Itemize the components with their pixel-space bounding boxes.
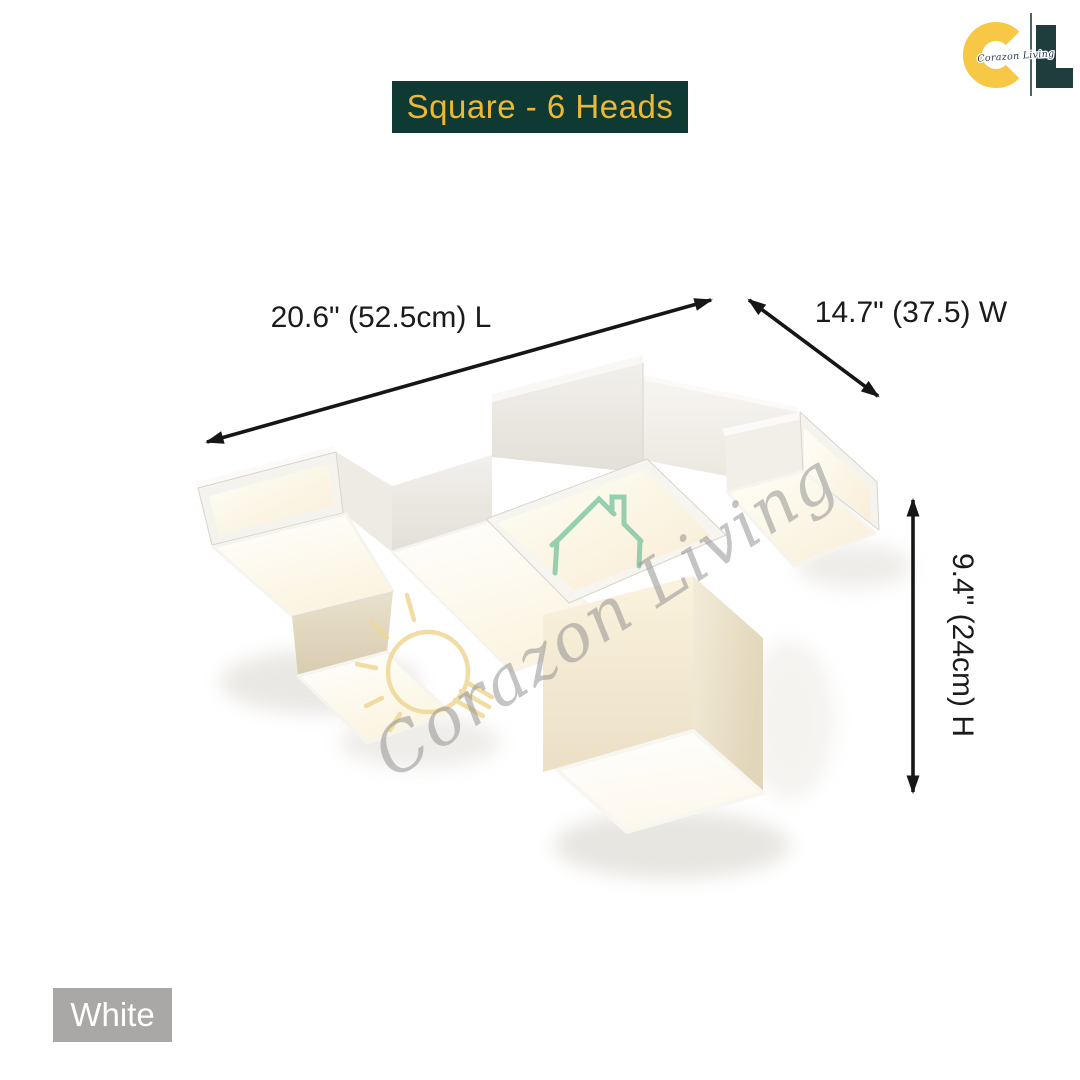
brand-logo: Corazon Living — [950, 12, 1080, 112]
color-variant-chip: White — [53, 988, 172, 1042]
lamp-dimension-illustration: Corazon Living 20.6" (52.5cm) L 14.7" (3… — [0, 0, 1080, 1080]
product-title-badge: Square - 6 Heads — [392, 81, 688, 133]
color-variant-text: White — [70, 996, 154, 1034]
width-label: 14.7" (37.5) W — [815, 296, 1008, 329]
product-dimension-page: Corazon Living 20.6" (52.5cm) L 14.7" (3… — [0, 0, 1080, 1080]
product-title-text: Square - 6 Heads — [407, 88, 674, 126]
length-label: 20.6" (52.5cm) L — [271, 301, 492, 334]
height-label: 9.4" (24cm) H — [946, 553, 979, 737]
